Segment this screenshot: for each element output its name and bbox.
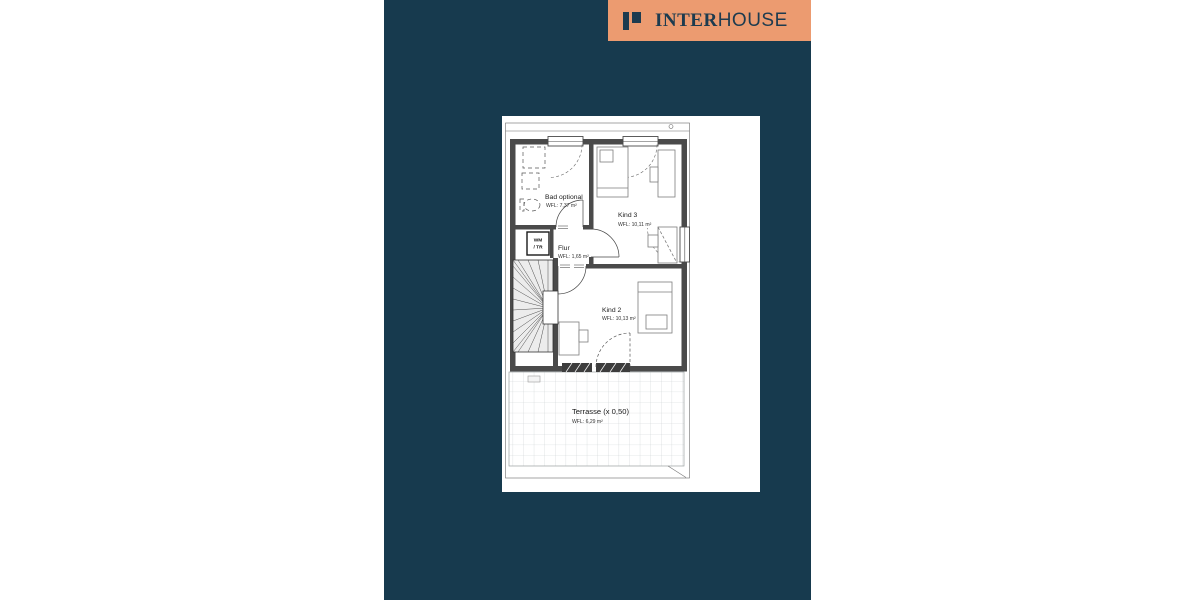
washbasin-outline <box>522 173 539 189</box>
logo-mark-left-bar <box>623 12 629 30</box>
door-kind2 <box>558 266 586 294</box>
toilet-outline <box>524 199 540 211</box>
pillow-kind3 <box>600 150 613 162</box>
floorplan-drawing: WM / TR <box>502 116 760 492</box>
desk-kind3 <box>650 167 658 182</box>
room-area-bad: WFL: 7,37 m² <box>546 203 577 209</box>
toilet-tank-outline <box>520 199 524 211</box>
pillow-kind2 <box>646 315 667 329</box>
door-kind3 <box>591 229 619 257</box>
room-label-bad: Bad optional <box>545 194 583 201</box>
stair-handrail <box>543 291 558 324</box>
room-area-flur: WFL: 1,65 m² <box>558 254 589 260</box>
page: INTERHOUSE <box>0 0 1200 600</box>
terrace-door-swing <box>596 333 630 367</box>
desk-kind2 <box>559 322 579 355</box>
window-right-wall <box>680 227 690 262</box>
room-area-kind2: WFL: 10,13 m² <box>602 316 636 322</box>
logo-wordmark-house: HOUSE <box>718 10 788 31</box>
furniture-kind3 <box>597 147 677 263</box>
staircase <box>513 260 558 352</box>
logo-wordmark: INTERHOUSE <box>655 10 788 32</box>
room-area-terrasse: WFL: 6,29 m² <box>572 419 603 425</box>
floorplan-paper: WM / TR <box>502 116 760 492</box>
room-label-kind2: Kind 2 <box>602 307 621 314</box>
room-label-flur: Flur <box>558 245 570 252</box>
logo-mark-right-bar <box>632 12 641 23</box>
logo-wordmark-inter: INTER <box>655 10 718 31</box>
bathroom-fixtures <box>520 147 545 211</box>
room-area-kind3: WFL: 10,11 m² <box>618 222 652 228</box>
interhouse-logo-mark-icon <box>623 12 643 30</box>
interhouse-logo: INTERHOUSE <box>608 0 811 41</box>
window-top-left <box>548 137 583 147</box>
vent-marker-icon <box>669 125 673 129</box>
terrace-step <box>528 376 540 382</box>
side-table-kind3 <box>648 235 658 247</box>
room-label-kind3: Kind 3 <box>618 212 637 219</box>
terrace-door-sill <box>562 363 592 372</box>
closet-label-line2: / TR <box>533 245 543 251</box>
washer-dryer-closet: WM / TR <box>527 232 549 255</box>
wardrobe-kind3 <box>658 150 675 197</box>
terrace-corner-line <box>668 466 686 478</box>
terrace-window-sill <box>596 363 630 372</box>
window-top-right <box>623 137 658 147</box>
closet-label-line1: WM <box>534 238 543 244</box>
shower-outline <box>523 147 545 168</box>
chair-kind2 <box>579 330 588 342</box>
room-label-terrasse: Terrasse (x 0,50) <box>572 407 629 416</box>
